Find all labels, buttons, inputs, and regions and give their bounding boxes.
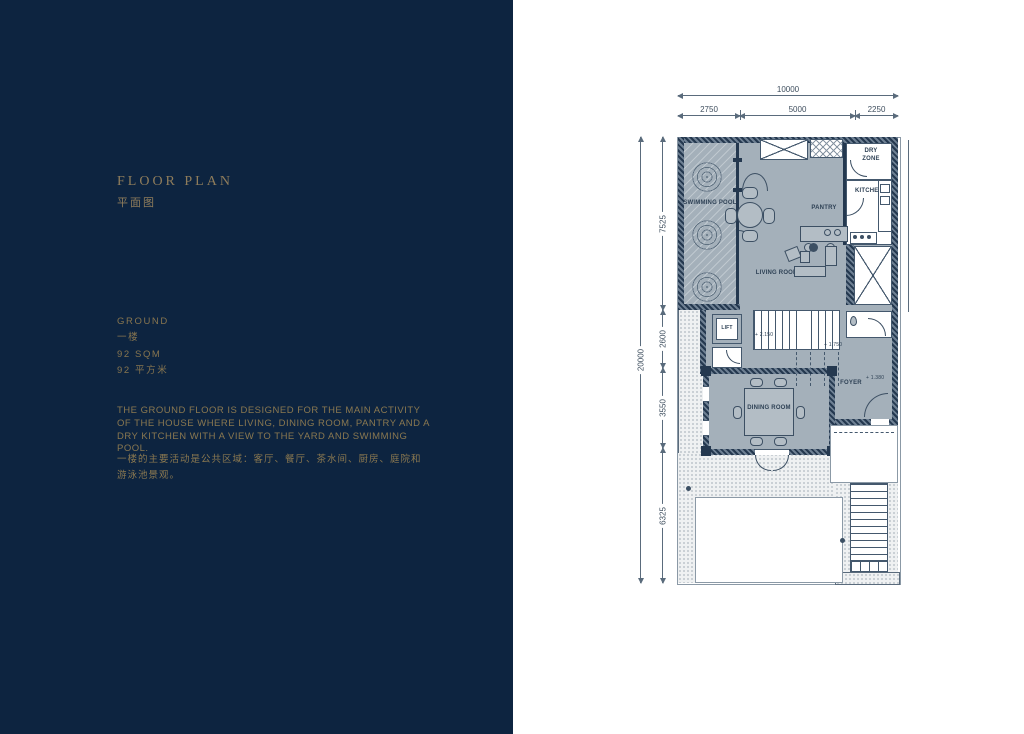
dim-label: 2750 bbox=[697, 105, 721, 114]
dim-top-total: 10000 bbox=[678, 95, 898, 96]
dim-label: 20000 bbox=[637, 346, 646, 374]
floor-plan: 10000 2750 5000 2250 20000 7525 2600 355… bbox=[628, 80, 938, 605]
coffee-table-icon bbox=[800, 251, 810, 263]
toilet-icon bbox=[850, 316, 857, 326]
dim-label: 7525 bbox=[659, 212, 668, 236]
column bbox=[701, 446, 711, 456]
dim-label: 6325 bbox=[659, 504, 668, 528]
area-label-zh: 92 平方米 bbox=[117, 362, 168, 376]
dim-label: 10000 bbox=[774, 85, 802, 94]
driveway bbox=[695, 497, 843, 583]
stair-flight-up bbox=[753, 310, 803, 350]
sofa-icon bbox=[794, 266, 826, 277]
hall-west-wall bbox=[700, 310, 706, 374]
pantry-label: PANTRY bbox=[796, 205, 852, 213]
dim-label: 3550 bbox=[659, 396, 668, 420]
floor-level-label: GROUND bbox=[117, 316, 169, 327]
planting-strip-right bbox=[888, 483, 898, 583]
level-annotation: + 2.150 bbox=[755, 332, 773, 338]
exterior-wall-left bbox=[678, 137, 684, 310]
level-annotation: + 1.750 bbox=[824, 342, 842, 348]
chair-icon bbox=[796, 406, 805, 419]
dining-wall-north bbox=[703, 368, 835, 374]
level-annotation: + 1.380 bbox=[866, 375, 884, 381]
wall-pier bbox=[733, 158, 742, 162]
dim-top-seg2: 5000 bbox=[740, 115, 855, 116]
pool-end-wall bbox=[678, 304, 740, 310]
chair-icon bbox=[733, 406, 742, 419]
dim-left-seg2: 2600 bbox=[662, 310, 663, 368]
exterior-stair bbox=[850, 483, 888, 561]
dim-left-seg1: 7525 bbox=[662, 137, 663, 310]
dim-left-seg3: 3550 bbox=[662, 368, 663, 448]
column bbox=[827, 366, 837, 376]
column bbox=[701, 366, 711, 376]
pool-ripple-icon bbox=[690, 218, 724, 252]
yard-drain-icon bbox=[840, 538, 845, 543]
description-en: THE GROUND FLOOR IS DESIGNED FOR THE MAI… bbox=[117, 405, 435, 456]
burner-icon bbox=[860, 235, 864, 239]
brochure-left-panel: FLOOR PLAN 平面图 GROUND 一楼 92 SQM 92 平方米 T… bbox=[0, 0, 513, 734]
dim-left-seg4: 6325 bbox=[662, 448, 663, 583]
island-sink-icon bbox=[824, 229, 831, 236]
dim-top-seg3: 2250 bbox=[855, 115, 898, 116]
chair-icon bbox=[774, 437, 787, 446]
yard-bottom-strip bbox=[835, 572, 900, 585]
void-shaft bbox=[854, 246, 892, 305]
dim-tick bbox=[855, 110, 856, 120]
chair-icon bbox=[725, 208, 737, 224]
page-title-zh: 平面图 bbox=[117, 194, 156, 210]
island-hob-icon bbox=[834, 229, 841, 236]
chair-icon bbox=[742, 187, 758, 199]
dim-top-seg1: 2750 bbox=[678, 115, 740, 116]
chair-icon bbox=[774, 378, 787, 387]
burner-icon bbox=[853, 235, 857, 239]
skylight-panel bbox=[760, 139, 808, 160]
stair-landing bbox=[802, 310, 811, 350]
stair-bottom-landing bbox=[850, 561, 888, 572]
exterior-wall-right bbox=[892, 137, 898, 425]
chair-icon bbox=[763, 208, 775, 224]
dining-room-label: DINING ROOM bbox=[744, 405, 794, 413]
dining-wall-west bbox=[703, 368, 709, 455]
carport bbox=[830, 425, 898, 483]
lift-label: LIFT bbox=[712, 325, 742, 331]
kitchen-sink-icon bbox=[880, 196, 890, 205]
pool-ripple-icon bbox=[690, 270, 724, 304]
sofa-side-icon bbox=[825, 246, 837, 266]
grille-panel bbox=[810, 139, 843, 158]
window bbox=[703, 386, 709, 402]
round-table-icon bbox=[737, 202, 763, 228]
floor-level-label-zh: 一楼 bbox=[117, 329, 139, 343]
wall-pier bbox=[733, 188, 742, 192]
dim-tick bbox=[740, 110, 741, 120]
burner-icon bbox=[867, 235, 871, 239]
shaft-wall bbox=[846, 245, 854, 305]
dim-label: 2250 bbox=[865, 105, 889, 114]
dim-label: 5000 bbox=[786, 105, 810, 114]
dim-label: 2600 bbox=[659, 327, 668, 351]
area-label: 92 SQM bbox=[117, 349, 161, 360]
chair-icon bbox=[742, 230, 758, 242]
carport-dashed-line bbox=[834, 432, 894, 433]
setback-line bbox=[908, 140, 909, 312]
kitchen-sink-icon bbox=[880, 184, 890, 193]
description-zh: 一楼的主要活动是公共区域：客厅、餐厅、茶水间、厨房、庭院和游泳池景观。 bbox=[117, 452, 427, 484]
yard-drain-icon bbox=[686, 486, 691, 491]
pool-partition-wall bbox=[736, 143, 739, 304]
chair-icon bbox=[750, 437, 763, 446]
page-title: FLOOR PLAN bbox=[117, 174, 233, 190]
dim-left-total: 20000 bbox=[640, 137, 641, 583]
chair-icon bbox=[750, 378, 763, 387]
foyer-label: FOYER bbox=[836, 380, 866, 388]
side-table-icon bbox=[809, 243, 818, 252]
pool-ripple-icon bbox=[690, 160, 724, 194]
window bbox=[703, 420, 709, 436]
swimming-pool-label: SWIMMING POOL bbox=[682, 200, 738, 208]
